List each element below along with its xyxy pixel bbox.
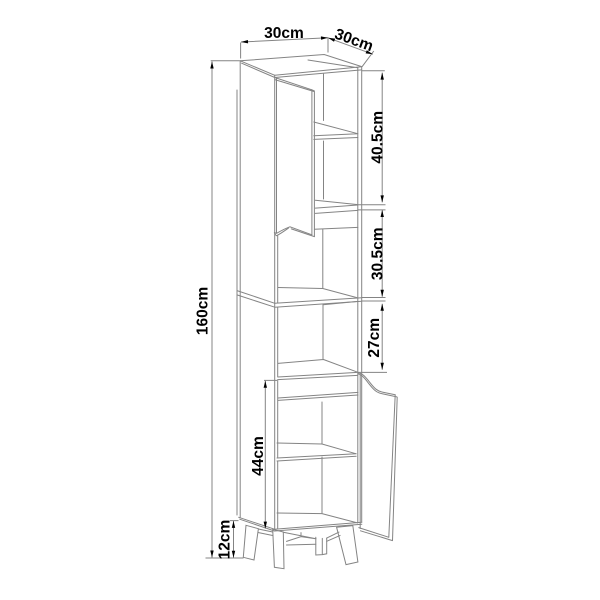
svg-text:12cm: 12cm (216, 520, 233, 560)
svg-text:30cm: 30cm (332, 26, 375, 56)
svg-text:30cm: 30cm (264, 25, 304, 42)
svg-text:44cm: 44cm (250, 436, 267, 476)
svg-text:27cm: 27cm (366, 318, 383, 358)
svg-text:30.5cm: 30.5cm (370, 228, 387, 281)
svg-text:40.5cm: 40.5cm (370, 111, 387, 164)
svg-text:160cm: 160cm (195, 287, 212, 335)
